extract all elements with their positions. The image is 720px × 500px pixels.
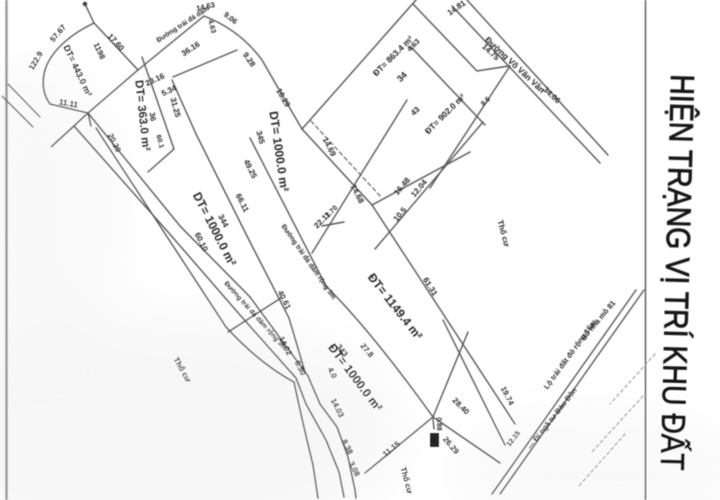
svg-text:43: 43 [409, 105, 422, 118]
svg-text:10.5: 10.5 [392, 205, 409, 223]
svg-text:36.16: 36.16 [180, 39, 202, 58]
svg-text:ĐT= 863.4 m²: ĐT= 863.4 m² [371, 34, 415, 78]
svg-text:60.1: 60.1 [154, 134, 164, 149]
svg-text:Thổ cư: Thổ cư [496, 219, 512, 248]
svg-text:8.5: 8.5 [480, 96, 492, 108]
svg-text:28.40: 28.40 [451, 396, 472, 417]
svg-text:49.25: 49.25 [242, 158, 259, 180]
svg-text:34: 34 [395, 70, 409, 84]
svg-text:61.31: 61.31 [421, 276, 440, 298]
svg-text:DT= 1000.0 m²: DT= 1000.0 m² [190, 190, 239, 269]
svg-text:HIỆN TRẠNG VỊ TRÍ KHU ĐẤT: HIỆN TRẠNG VỊ TRÍ KHU ĐẤT [653, 74, 701, 471]
svg-text:5.34: 5.34 [160, 83, 178, 98]
svg-text:9.06: 9.06 [222, 10, 239, 26]
svg-text:ĐT= 1149.4 m²: ĐT= 1149.4 m² [365, 271, 426, 343]
svg-text:14.63: 14.63 [195, 0, 215, 13]
svg-text:DT= 1000.0 m²: DT= 1000.0 m² [266, 110, 291, 192]
svg-text:14.81: 14.81 [446, 0, 468, 17]
svg-text:0.88: 0.88 [435, 417, 442, 431]
svg-text:27.8: 27.8 [358, 342, 375, 360]
svg-text:66.11: 66.11 [234, 192, 251, 214]
svg-text:345: 345 [254, 130, 266, 146]
svg-text:Thổ cư: Thổ cư [399, 466, 415, 495]
svg-text:Đường trải đá dăm rộng 3m: Đường trải đá dăm rộng 3m [280, 223, 337, 301]
svg-text:17.60: 17.60 [106, 32, 127, 53]
svg-text:36: 36 [147, 112, 157, 123]
svg-text:Đường Võ Văn Vân: Đường Võ Văn Vân [483, 35, 547, 95]
svg-text:1198: 1198 [92, 41, 108, 61]
svg-text:34.06: 34.06 [541, 85, 562, 106]
svg-text:14.69: 14.69 [321, 136, 338, 158]
svg-text:ĐT= 902.0 m²: ĐT= 902.0 m² [423, 92, 467, 136]
svg-text:9.28: 9.28 [241, 51, 258, 69]
svg-text:14.68: 14.68 [349, 183, 366, 205]
svg-text:26.29: 26.29 [441, 435, 461, 457]
svg-text:10.29: 10.29 [274, 87, 292, 109]
